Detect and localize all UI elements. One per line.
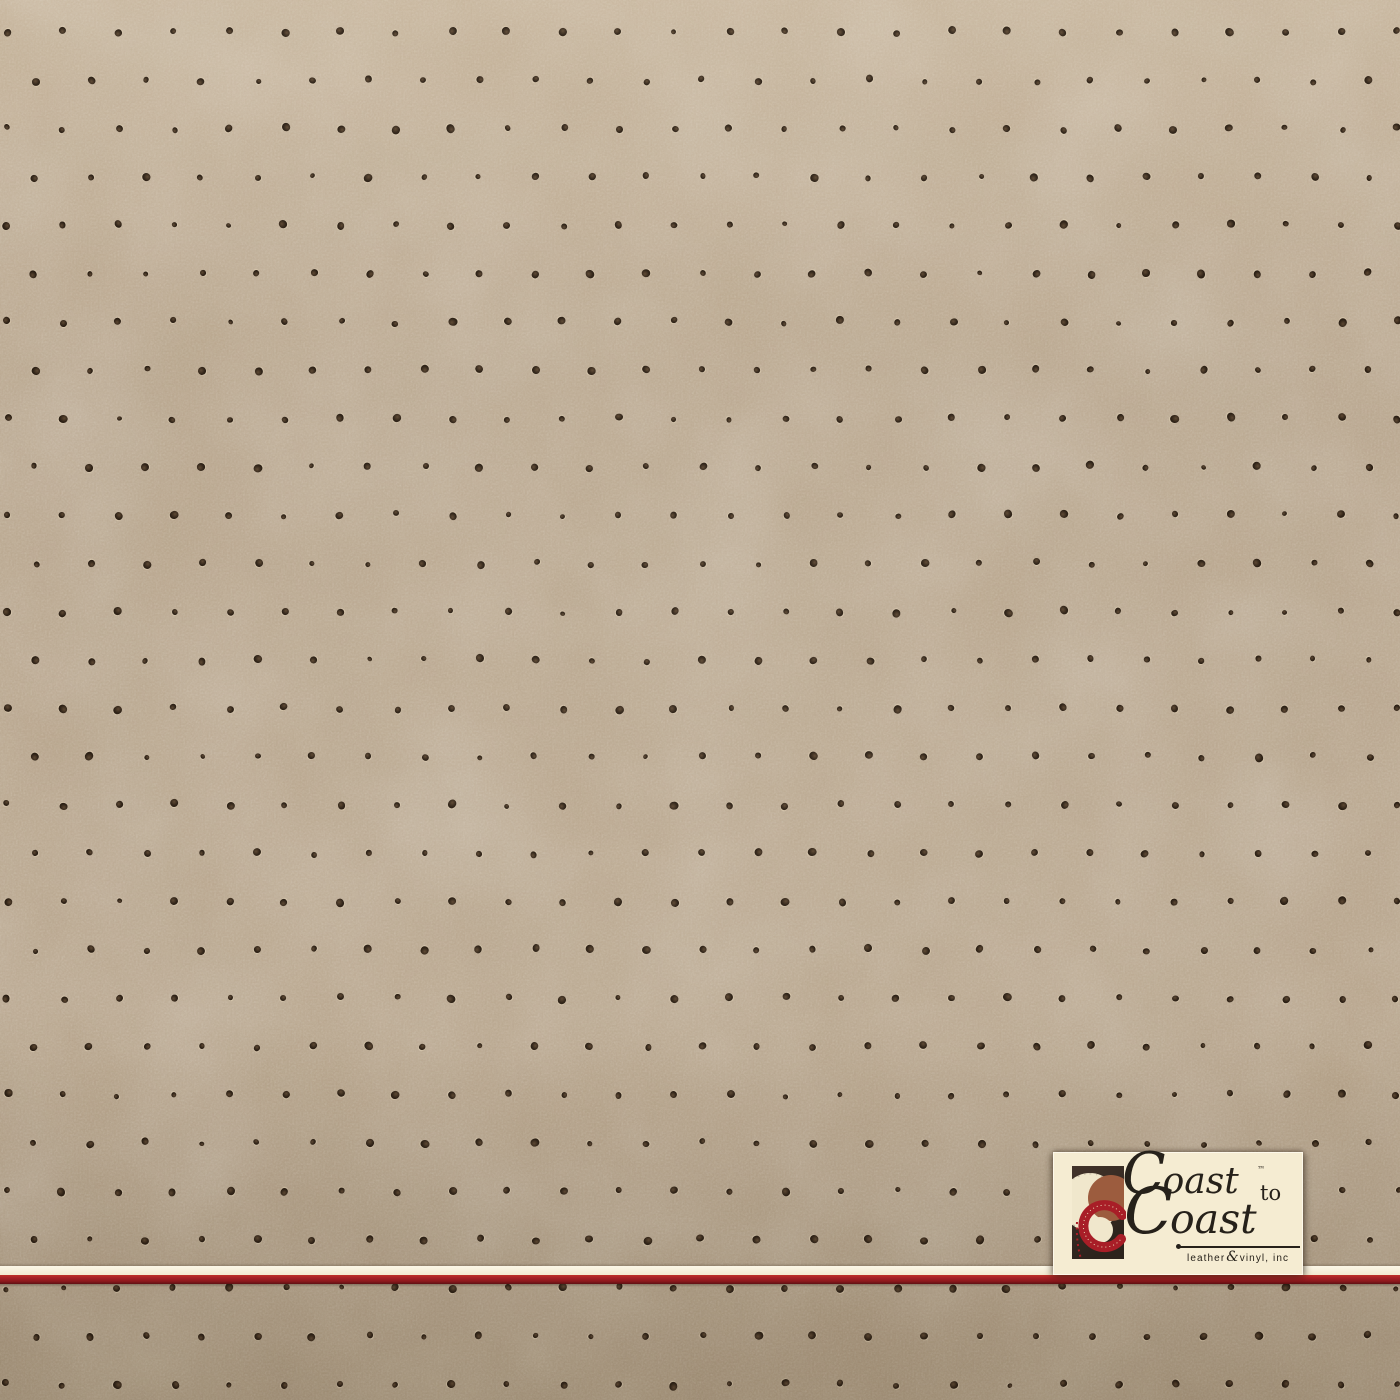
perforation-dot <box>337 221 344 229</box>
perforation-dot <box>504 898 513 907</box>
perforation-dot <box>365 268 375 279</box>
perforation-dot <box>1058 604 1070 616</box>
perforation-dot <box>115 994 124 1003</box>
perforation-dot <box>669 511 677 519</box>
perforation-dot <box>671 416 678 423</box>
perforation-dot <box>531 1237 539 1244</box>
perforation-dot <box>113 510 123 520</box>
perforation-dot <box>281 607 290 616</box>
perforation-dot <box>30 365 41 376</box>
perforation-dot <box>168 703 176 711</box>
perforation-dot <box>1281 124 1287 129</box>
perforation-dot <box>279 994 287 1002</box>
perforation-dot <box>588 850 594 856</box>
perforation-dot <box>949 1381 958 1390</box>
perforation-dot <box>810 366 817 372</box>
perforation-dot <box>782 1379 791 1387</box>
perforation-dot <box>583 268 595 280</box>
perforation-dot <box>1085 173 1096 184</box>
perforation-dot <box>169 896 179 906</box>
perforation-dot <box>279 1187 288 1197</box>
perforation-dot <box>615 995 621 1001</box>
perforation-dot <box>142 1331 151 1340</box>
perforation-dot <box>1337 1380 1345 1388</box>
perforation-dot <box>366 849 373 856</box>
perforation-dot <box>919 753 927 761</box>
perforation-dot <box>309 655 318 664</box>
perforation-dot <box>671 29 677 35</box>
perforation-dot <box>227 319 234 326</box>
perforation-dot <box>839 125 846 132</box>
perforation-dot <box>560 610 566 616</box>
perforation-dot <box>917 1040 928 1051</box>
perforation-dot <box>1308 1333 1317 1341</box>
perforation-dot <box>1196 559 1206 568</box>
perforation-dot <box>1309 78 1317 86</box>
perforation-dot <box>308 1041 318 1051</box>
perforation-dot <box>726 1380 733 1387</box>
perforation-dot <box>338 317 345 324</box>
perforation-dot <box>1057 993 1067 1003</box>
perforation-dot <box>1224 124 1233 132</box>
perforation-dot <box>975 944 985 954</box>
perforation-dot <box>225 223 232 229</box>
perforation-dot <box>893 897 902 906</box>
perforation-dot <box>1200 465 1207 472</box>
perforation-dot <box>1144 657 1150 663</box>
perforation-dot <box>1223 26 1236 38</box>
perforation-dot <box>335 992 345 1002</box>
perforation-dot <box>391 1381 399 1389</box>
perforation-dot <box>502 703 511 712</box>
perforation-dot <box>726 1088 736 1098</box>
perforation-dot <box>226 896 235 906</box>
perforation-dot <box>168 509 179 519</box>
perforation-dot <box>1281 28 1291 37</box>
perforation-dot <box>1142 560 1149 567</box>
perforation-dot <box>1199 946 1209 956</box>
perforation-dot <box>807 1329 818 1340</box>
perforation-dot <box>1227 897 1235 905</box>
perforation-dot <box>391 29 399 37</box>
perforation-dot <box>252 268 260 276</box>
perforation-dot <box>1084 460 1095 471</box>
perforation-dot <box>474 653 486 665</box>
perforation-dot <box>1085 1040 1095 1051</box>
perforation-dot <box>30 1140 37 1147</box>
perforation-dot <box>642 1140 650 1147</box>
perforation-dot <box>2 27 12 38</box>
perforation-dot <box>532 1332 540 1340</box>
tagline-leather: leather <box>1187 1253 1225 1264</box>
perforation-dot <box>919 174 927 183</box>
perforation-dot <box>642 1235 653 1245</box>
perforation-dot <box>87 1236 94 1243</box>
perforation-dot <box>280 513 287 520</box>
perforation-dot <box>1393 896 1400 905</box>
leather-sample-image: Coast ™ to Coast leather&vinyl, inc <box>0 0 1400 1400</box>
perforation-dot <box>335 898 345 908</box>
logo-mark-icon <box>1068 1164 1126 1261</box>
perforation-dot <box>3 123 11 131</box>
perforation-dot <box>1393 704 1400 712</box>
perforation-dot <box>866 657 874 665</box>
perforation-dot <box>1031 655 1040 664</box>
perforation-dot <box>726 221 733 228</box>
perforation-dot <box>1171 609 1179 617</box>
perforation-dot <box>1087 1332 1097 1342</box>
perforation-dot <box>947 703 955 711</box>
perforation-dot <box>588 658 595 665</box>
perforation-dot <box>88 657 96 666</box>
perforation-dot <box>810 462 819 471</box>
perforation-dot <box>862 1233 873 1244</box>
perforation-dot <box>894 1092 900 1099</box>
perforation-dot <box>307 1236 316 1245</box>
perforation-dot <box>1392 124 1399 131</box>
perforation-dot <box>863 1041 873 1051</box>
perforation-dot <box>255 1333 263 1340</box>
perforation-dot <box>61 897 68 904</box>
perforation-dot <box>1059 317 1069 327</box>
perforation-dot <box>504 316 514 325</box>
perforation-dot <box>865 175 871 182</box>
perforation-dot <box>32 1334 39 1342</box>
perforation-dot <box>1310 464 1318 472</box>
perforation-dot <box>474 269 485 280</box>
perforation-dot <box>87 76 97 86</box>
perforation-dot <box>1253 1042 1262 1051</box>
perforation-dot <box>253 1234 262 1242</box>
perforation-dot <box>1251 557 1263 569</box>
perforation-dot <box>57 703 69 715</box>
perforation-dot <box>641 1333 649 1342</box>
perforation-dot <box>196 173 204 181</box>
perforation-dot <box>84 1042 94 1052</box>
perforation-dot <box>1254 366 1262 374</box>
perforation-dot <box>669 1185 680 1195</box>
perforation-dot <box>140 1237 149 1245</box>
perforation-dot <box>1170 220 1180 230</box>
perforation-dot <box>1281 610 1287 615</box>
perforation-dot <box>2 994 9 1002</box>
perforation-dot <box>977 1333 983 1339</box>
perforation-dot <box>1004 898 1010 904</box>
perforation-dot <box>1365 558 1375 568</box>
perforation-dot <box>836 511 844 518</box>
perforation-dot <box>558 415 566 423</box>
perforation-dot <box>671 125 679 133</box>
perforation-dot <box>445 123 456 134</box>
perforation-dot <box>1087 366 1095 373</box>
perforation-dot <box>1114 607 1121 615</box>
perforation-dot <box>1199 365 1208 375</box>
perforation-dot <box>448 318 457 326</box>
brand-initial-2: C <box>1124 1175 1170 1249</box>
perforation-dot <box>559 513 566 520</box>
perforation-dot <box>502 221 510 229</box>
perforation-dot <box>1059 799 1069 810</box>
perforation-dot <box>474 944 483 954</box>
perforation-dot <box>448 1090 458 1100</box>
perforation-dot <box>779 897 790 907</box>
perforation-dot <box>893 318 901 326</box>
perforation-dot <box>1253 1331 1264 1342</box>
perforation-dot <box>641 364 651 374</box>
perforation-dot <box>1143 77 1150 84</box>
perforation-dot <box>559 705 567 714</box>
perforation-dot <box>1255 656 1262 663</box>
perforation-dot <box>642 172 649 180</box>
perforation-dot <box>782 1093 789 1099</box>
perforation-dot <box>836 705 844 712</box>
perforation-dot <box>1002 607 1014 619</box>
perforation-dot <box>752 946 760 955</box>
perforation-dot <box>1031 750 1040 760</box>
perforation-dot <box>1144 368 1151 375</box>
perforation-dot <box>700 1332 707 1339</box>
perforation-dot <box>29 1043 39 1052</box>
perforation-dot <box>1253 270 1261 279</box>
perforation-dot <box>1309 1043 1316 1050</box>
perforation-dot <box>530 654 540 664</box>
perforation-dot <box>1143 1334 1151 1342</box>
perforation-dot <box>615 1092 621 1099</box>
perforation-dot <box>1171 1378 1181 1388</box>
perforation-dot <box>56 1186 67 1198</box>
perforation-dot <box>1392 315 1400 326</box>
perforation-dot <box>919 366 929 376</box>
perforation-dot <box>558 316 566 324</box>
perforation-dot <box>1196 753 1205 762</box>
perforation-dot <box>698 1137 706 1146</box>
perforation-dot <box>1059 219 1070 230</box>
perforation-dot <box>699 269 707 277</box>
perforation-dot <box>586 560 594 568</box>
perforation-dot <box>1030 847 1039 856</box>
perforation-dot <box>2 1379 10 1387</box>
perforation-dot <box>1281 1379 1291 1389</box>
perforation-dot <box>1281 510 1288 517</box>
perforation-dot <box>724 897 734 907</box>
perforation-dot <box>87 559 96 568</box>
perforation-dot <box>307 751 316 759</box>
perforation-dot <box>334 511 344 520</box>
perforation-dot <box>947 126 956 135</box>
perforation-dot <box>1172 995 1179 1001</box>
perforation-dot <box>4 703 13 712</box>
tagline-suffix: vinyl, inc <box>1240 1253 1289 1264</box>
perforation-dot <box>1227 609 1234 616</box>
perforation-dot <box>223 123 234 134</box>
perforation-dot <box>2 221 12 231</box>
perforation-dot <box>448 897 456 905</box>
perforation-dot <box>279 897 289 907</box>
perforation-dot <box>448 414 459 425</box>
perforation-dot <box>306 1332 317 1343</box>
perforation-dot <box>1363 1330 1373 1340</box>
perforation-dot <box>754 751 763 760</box>
perforation-dot <box>1337 801 1347 810</box>
perforation-dot <box>754 656 763 666</box>
perforation-dot <box>422 463 428 469</box>
perforation-dot <box>254 367 263 376</box>
perforation-dot <box>615 802 623 810</box>
perforation-dot <box>1057 27 1068 38</box>
perforation-dot <box>253 945 262 954</box>
perforation-dot <box>1281 995 1291 1005</box>
perforation-dot <box>363 944 373 954</box>
perforation-dot <box>195 945 206 956</box>
perforation-dot <box>641 847 650 856</box>
perforation-dot <box>669 802 678 810</box>
perforation-dot <box>1309 171 1320 182</box>
perforation-dot <box>1089 562 1095 568</box>
perforation-dot <box>559 899 567 907</box>
perforation-dot <box>336 414 345 423</box>
perforation-dot <box>142 270 149 277</box>
perforation-dot <box>2 316 11 325</box>
perforation-dot <box>726 607 734 615</box>
perforation-dot <box>836 799 845 808</box>
perforation-dot <box>1339 126 1347 134</box>
perforation-dot <box>947 1091 956 1100</box>
perforation-dot <box>1172 1091 1178 1097</box>
perforation-dot <box>724 318 733 327</box>
perforation-dot <box>362 172 374 184</box>
perforation-dot <box>1031 269 1041 279</box>
coast-to-coast-logo: Coast ™ to Coast leather&vinyl, inc <box>1053 1152 1303 1275</box>
perforation-dot <box>753 172 760 178</box>
perforation-dot <box>865 365 872 372</box>
perforation-dot <box>420 364 431 375</box>
perforation-dot <box>171 126 178 133</box>
perforation-dot <box>586 1140 593 1147</box>
perforation-dot <box>1254 753 1264 763</box>
perforation-dot <box>1309 751 1317 759</box>
tagline-ampersand: & <box>1226 1249 1238 1265</box>
perforation-dot <box>669 316 678 325</box>
perforation-dot <box>1002 1187 1012 1197</box>
perforation-dot <box>807 848 817 858</box>
perforation-dot <box>779 26 789 36</box>
perforation-dot <box>448 26 458 37</box>
perforation-dot <box>252 1138 261 1146</box>
perforation-dot <box>781 125 788 132</box>
perforation-dot <box>58 608 67 618</box>
perforation-dot <box>669 1090 678 1099</box>
perforation-dot <box>366 655 373 662</box>
perforation-dot <box>612 316 623 327</box>
perforation-dot <box>447 704 456 713</box>
perforation-dot <box>725 416 731 423</box>
perforation-dot <box>113 606 122 615</box>
perforation-dot <box>697 74 706 83</box>
perforation-dot <box>198 1140 204 1146</box>
perforation-dot <box>863 559 872 568</box>
perforation-dot <box>224 511 233 520</box>
perforation-dot <box>277 218 289 230</box>
perforation-dot <box>556 994 567 1005</box>
perforation-dot <box>473 363 484 374</box>
perforation-dot <box>1390 1090 1400 1100</box>
perforation-dot <box>532 75 540 83</box>
perforation-dot <box>310 269 318 277</box>
perforation-dot <box>1058 1089 1067 1098</box>
perforation-dot <box>1310 850 1318 857</box>
perforation-dot <box>1170 704 1179 713</box>
perforation-dot <box>171 609 178 616</box>
perforation-dot <box>782 607 791 616</box>
perforation-dot <box>976 463 986 473</box>
perforation-dot <box>530 171 540 181</box>
perforation-dot <box>697 654 708 665</box>
perforation-dot <box>422 849 428 855</box>
perforation-dot <box>198 1333 206 1342</box>
perforation-dot <box>557 27 568 38</box>
perforation-dot <box>1251 460 1262 471</box>
perforation-dot <box>1252 946 1262 956</box>
perforation-dot <box>1310 656 1316 662</box>
perforation-dot <box>893 704 903 714</box>
perforation-dot <box>474 849 482 858</box>
perforation-dot <box>116 898 123 904</box>
perforation-dot <box>1116 512 1125 521</box>
perforation-dot <box>669 606 679 616</box>
perforation-dot <box>697 848 707 858</box>
perforation-dot <box>1059 703 1068 713</box>
perforation-dot <box>418 558 428 568</box>
perforation-dot <box>865 1140 874 1149</box>
perforation-dot <box>1198 1332 1209 1342</box>
perforation-dot <box>337 609 344 616</box>
perforation-dot <box>1337 704 1346 713</box>
perforation-dot <box>1086 75 1094 83</box>
perforation-dot <box>30 174 39 183</box>
perforation-dot <box>445 993 457 1004</box>
perforation-dot <box>837 1379 844 1387</box>
perforation-dot <box>255 174 262 181</box>
perforation-dot <box>28 268 38 279</box>
perforation-dot <box>476 754 483 761</box>
perforation-dot <box>808 1233 820 1245</box>
perforation-dot <box>30 752 41 763</box>
perforation-dot <box>725 801 734 810</box>
perforation-dot <box>641 946 650 955</box>
perforation-dot <box>86 367 93 375</box>
perforation-dot <box>615 125 623 133</box>
perforation-dot <box>58 126 65 133</box>
perforation-dot <box>114 29 123 38</box>
perforation-dot <box>753 1043 760 1051</box>
perforation-dot <box>58 512 65 519</box>
perforation-dot <box>1087 1139 1094 1146</box>
perforation-dot <box>84 464 93 473</box>
perforation-dot <box>1366 174 1372 181</box>
perforation-dot <box>1004 221 1012 229</box>
perforation-dot <box>947 896 957 906</box>
perforation-dot <box>1362 266 1373 277</box>
perforation-dot <box>1337 607 1345 615</box>
perforation-dot <box>419 946 429 956</box>
perforation-dot <box>391 412 402 423</box>
perforation-dot <box>728 705 734 712</box>
perforation-dot <box>505 1089 512 1096</box>
brand-rest-2: oast <box>1170 1195 1257 1243</box>
perforation-dot <box>280 122 292 134</box>
trademark-symbol: ™ <box>1257 1165 1265 1174</box>
perforation-dot <box>614 898 623 907</box>
